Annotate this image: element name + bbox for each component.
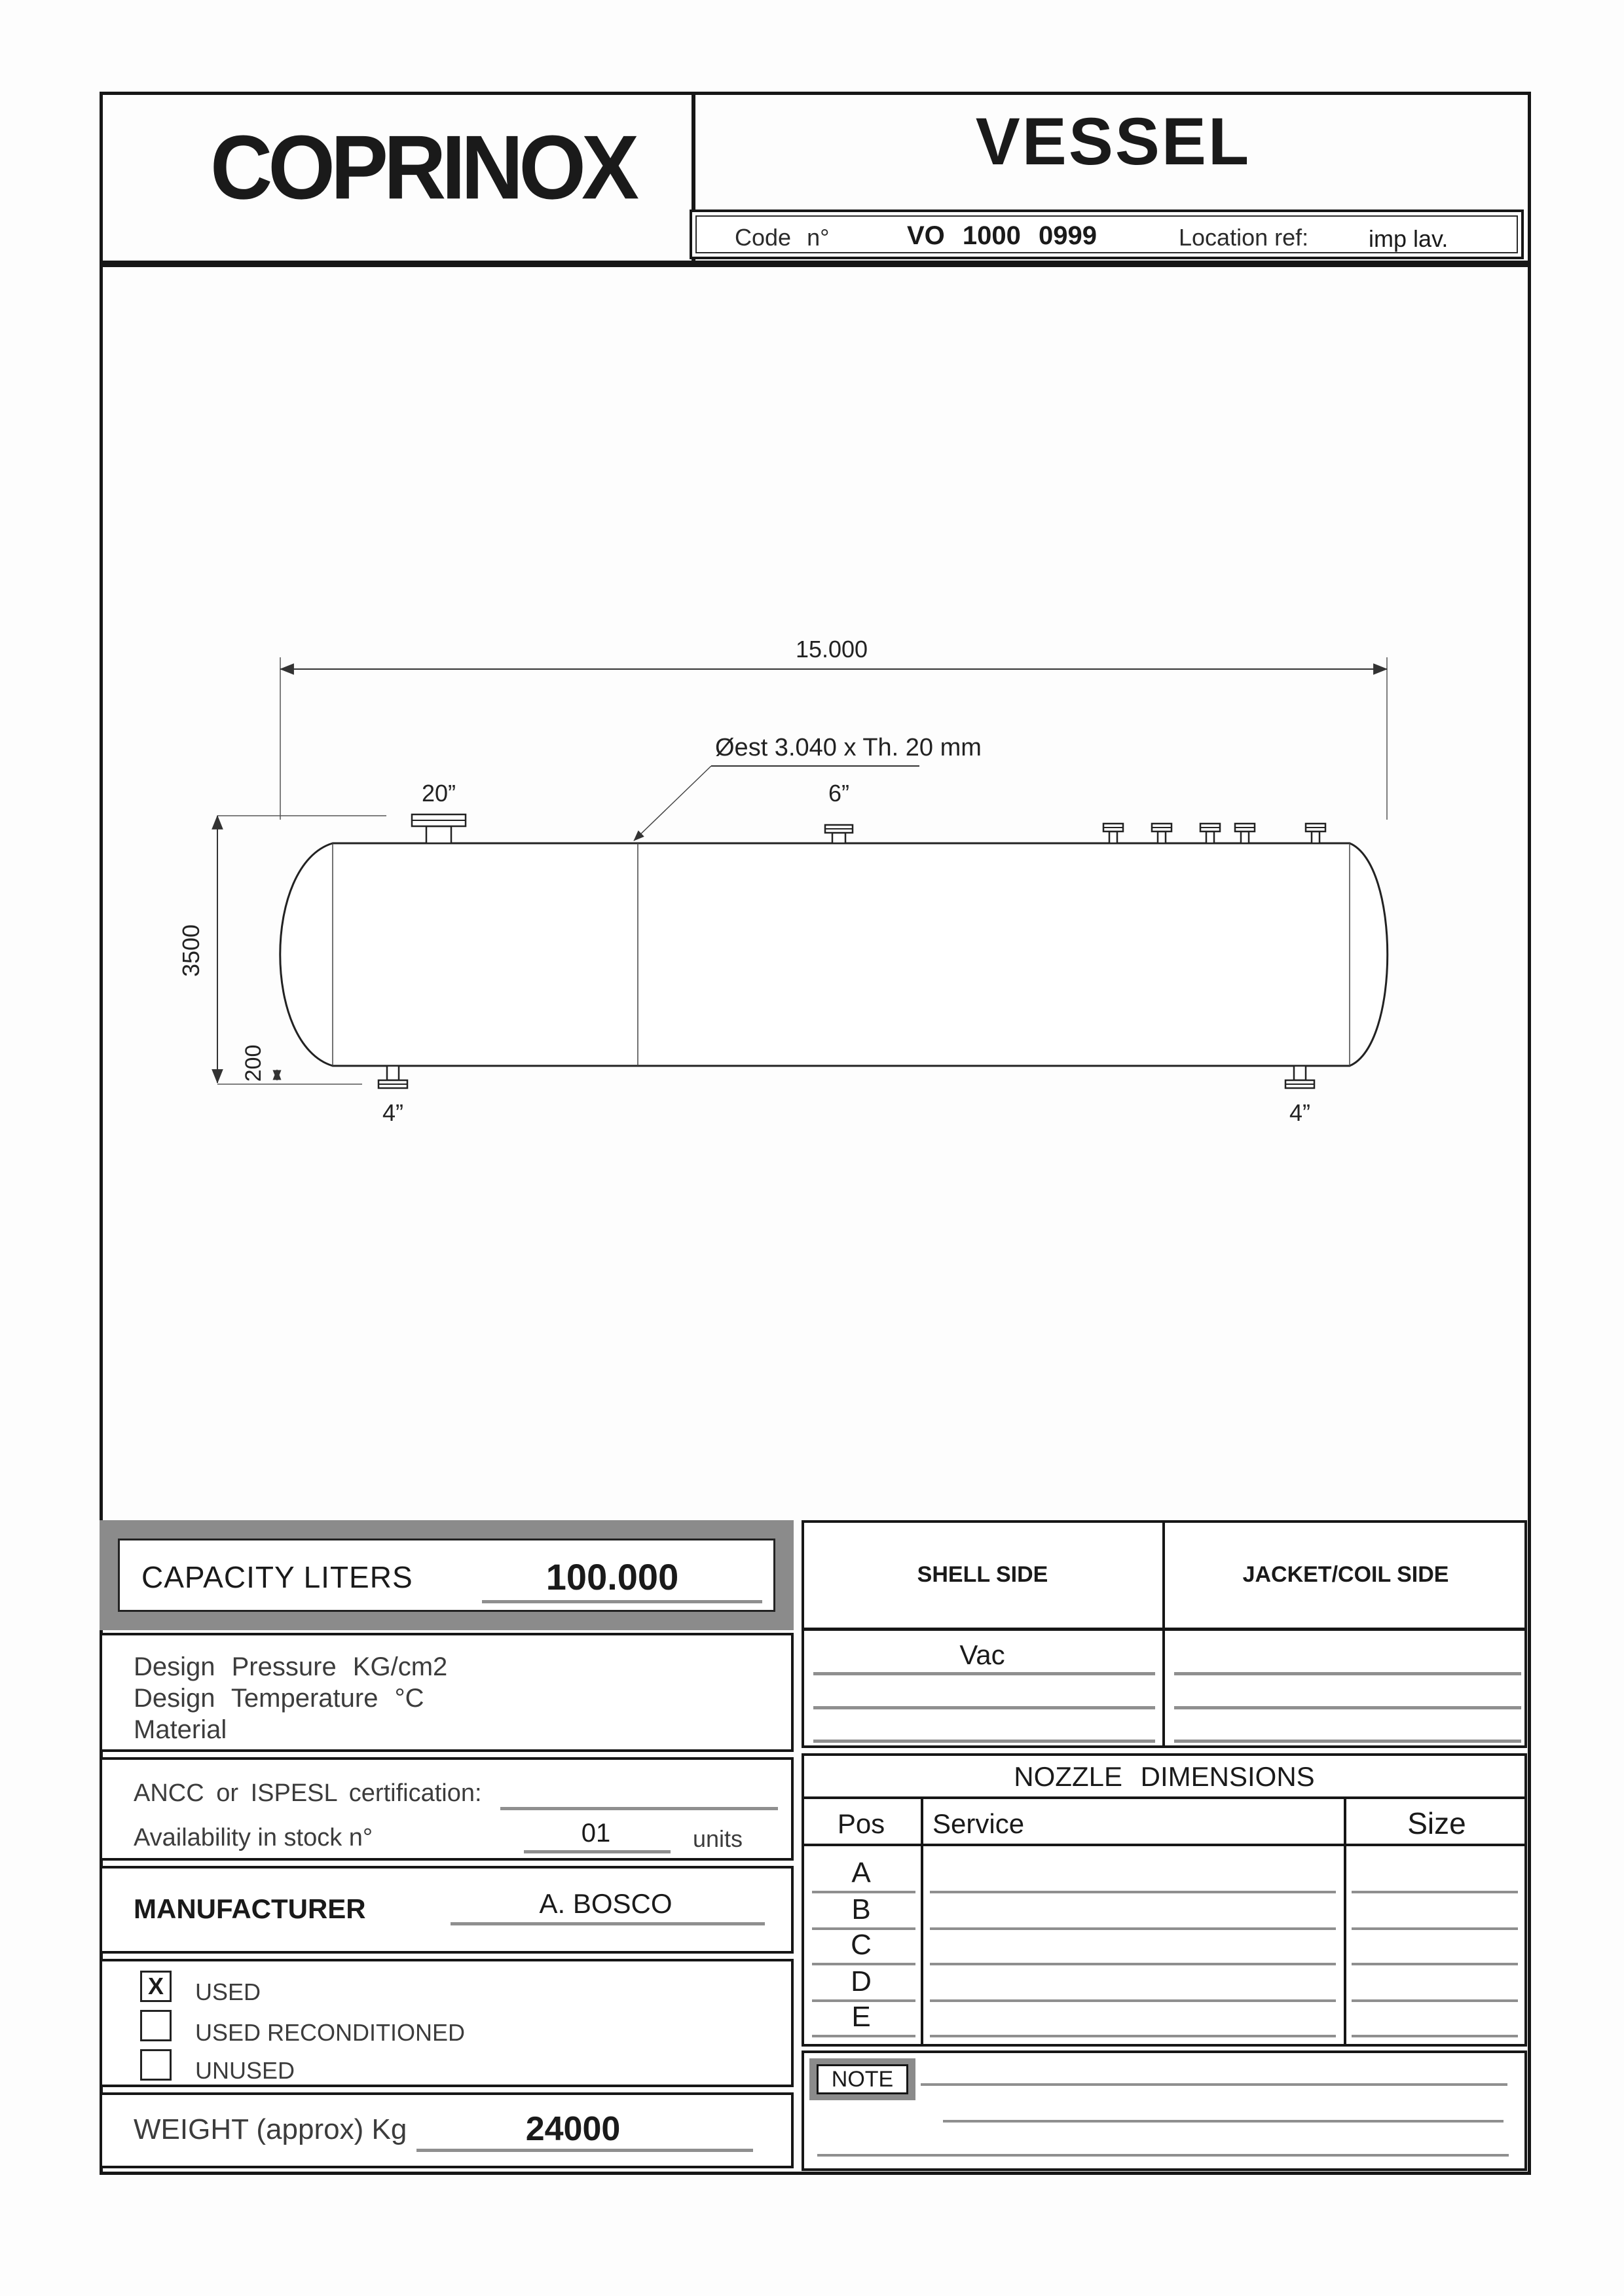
- unused-label: UNUSED: [195, 2057, 295, 2085]
- vessel-shell-outline: [280, 843, 1388, 1066]
- row-d-service-line: [930, 1999, 1336, 2002]
- nozzle-row-pos-d: D: [802, 1965, 921, 1998]
- row-d-size-line: [1352, 1999, 1518, 2002]
- material-label: Material: [134, 1715, 227, 1745]
- note-label: NOTE: [817, 2064, 908, 2094]
- shell-row3-line: [813, 1740, 1155, 1743]
- weight-label: WEIGHT (approx) Kg: [134, 2113, 407, 2146]
- stock-value: 01: [524, 1819, 668, 1848]
- shell-row1-line: [813, 1672, 1155, 1675]
- used-label: USED: [195, 1978, 261, 2006]
- nozzle-col-size: Size: [1346, 1806, 1527, 1841]
- jacket-row1-line: [1174, 1672, 1521, 1675]
- clearance-dimension-text: 200: [241, 1045, 266, 1082]
- nozzle-row-pos-e: E: [802, 2001, 921, 2033]
- nozzle-title-rule: [802, 1796, 1527, 1799]
- weight-value: 24000: [419, 2109, 727, 2149]
- note-line-3: [817, 2154, 1509, 2157]
- nozzle-header-rule: [802, 1844, 1527, 1846]
- design-pressure-label: Design Pressure KG/cm2: [134, 1652, 447, 1682]
- small-nozzle-3: [1200, 824, 1220, 843]
- nozzle-20in-label: 20”: [422, 780, 456, 807]
- sides-column-divider: [1162, 1520, 1165, 1748]
- capacity-label: CAPACITY LITERS: [141, 1559, 413, 1595]
- shell-note-leader: [634, 766, 711, 841]
- manufacturer-label: MANUFACTURER: [134, 1893, 366, 1925]
- jacket-row2-line: [1174, 1706, 1521, 1709]
- used-checkbox[interactable]: X: [140, 1971, 172, 2002]
- manufacturer-value: A. BOSCO: [452, 1888, 760, 1920]
- small-top-nozzles: [1103, 824, 1325, 843]
- manufacturer-underline: [451, 1922, 765, 1925]
- row-b-service-line: [930, 1927, 1336, 1930]
- stock-underline: [524, 1850, 671, 1853]
- design-temperature-label: Design Temperature °C: [134, 1684, 424, 1713]
- shell-row2-line: [813, 1706, 1155, 1709]
- nozzle-row-pos-a: A: [802, 1857, 921, 1889]
- nozzle-col-pos: Pos: [802, 1808, 921, 1840]
- bottom-nozzle-right-neck: [1294, 1066, 1306, 1080]
- small-nozzle-4: [1235, 824, 1255, 843]
- row-b-size-line: [1352, 1927, 1518, 1930]
- small-nozzle-5: [1306, 824, 1325, 843]
- diameter-dimension-text: 3500: [177, 924, 204, 977]
- bottom-nozzle-left-label: 4”: [382, 1099, 403, 1126]
- length-dimension-text: 15.000: [796, 636, 868, 663]
- small-nozzle-2: [1152, 824, 1172, 843]
- small-nozzle-1: [1103, 824, 1123, 843]
- used-reconditioned-label: USED RECONDITIONED: [195, 2019, 465, 2047]
- bottom-nozzle-left-neck: [387, 1066, 399, 1080]
- note-line-2: [943, 2120, 1504, 2123]
- used-reconditioned-checkbox[interactable]: [140, 2010, 172, 2041]
- row-a-service-line: [930, 1891, 1336, 1893]
- row-e-service-line: [930, 2035, 1336, 2037]
- stock-units-label: units: [693, 1825, 743, 1853]
- note-line-1: [921, 2083, 1507, 2086]
- capacity-underline: [482, 1600, 762, 1603]
- jacket-side-header: JACKET/COIL SIDE: [1166, 1562, 1525, 1588]
- certification-label: ANCC or ISPESL certification:: [134, 1779, 482, 1808]
- nozzle-pos-divider: [921, 1796, 923, 2047]
- row-c-size-line: [1352, 1963, 1518, 1965]
- row-a-size-line: [1352, 1891, 1518, 1893]
- shell-side-header: SHELL SIDE: [804, 1562, 1161, 1588]
- row-c-service-line: [930, 1963, 1336, 1965]
- weight-underline: [416, 2149, 753, 2152]
- jacket-row3-line: [1174, 1740, 1521, 1743]
- capacity-value: 100.000: [471, 1556, 753, 1598]
- nozzle-6in-label: 6”: [828, 780, 849, 807]
- nozzle-20in-neck: [426, 826, 451, 843]
- unused-checkbox[interactable]: [140, 2049, 172, 2081]
- row-e-pos-line: [812, 2035, 915, 2037]
- shell-note-text: Øest 3.040 x Th. 20 mm: [715, 734, 982, 761]
- nozzle-table-title: NOZZLE DIMENSIONS: [802, 1761, 1527, 1793]
- nozzle-row-pos-b: B: [802, 1893, 921, 1926]
- certification-blank-line: [500, 1807, 778, 1810]
- stock-label: Availability in stock n°: [134, 1824, 373, 1852]
- bottom-nozzle-right-label: 4”: [1289, 1099, 1310, 1126]
- shell-side-value: Vac: [891, 1639, 1074, 1671]
- row-e-size-line: [1352, 2035, 1518, 2037]
- nozzle-6in-neck: [832, 833, 845, 843]
- nozzle-col-service: Service: [932, 1808, 1024, 1840]
- vessel-datasheet-page: COPRINOX VESSEL Code n° VO 1000 0999 Loc…: [0, 0, 1624, 2296]
- nozzle-row-pos-c: C: [802, 1929, 921, 1961]
- used-checkbox-mark: X: [148, 1973, 164, 2000]
